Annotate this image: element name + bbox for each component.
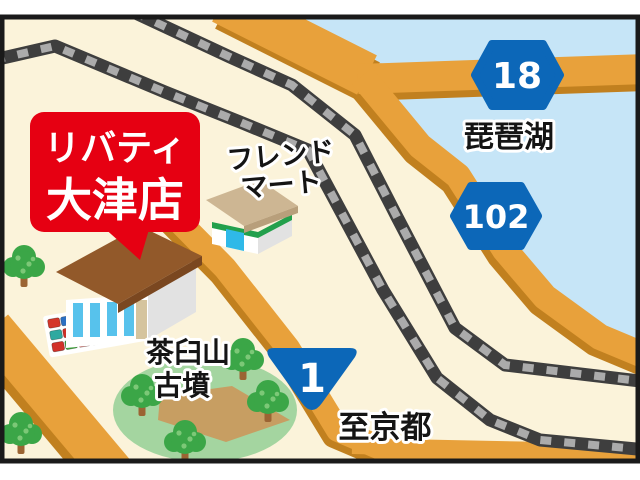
map-canvas: 18 102 1 リバティ 大津店 フレンド マート 琵琶湖 茶臼山 古墳 至京… bbox=[0, 0, 640, 480]
route-shield-102: 102 bbox=[454, 186, 538, 246]
to-kyoto-label: 至京都 bbox=[339, 410, 432, 446]
lake-biwa-label: 琵琶湖 bbox=[464, 120, 554, 155]
svg-text:茶臼山: 茶臼山 bbox=[146, 336, 230, 369]
shield-18-number: 18 bbox=[492, 56, 542, 97]
parked-car bbox=[47, 317, 60, 328]
parked-car bbox=[52, 341, 65, 352]
svg-text:古墳: 古墳 bbox=[154, 369, 210, 402]
store-callout-line1: リバティ bbox=[44, 128, 186, 169]
store-access-map: 18 102 1 リバティ 大津店 フレンド マート 琵琶湖 茶臼山 古墳 至京… bbox=[0, 0, 640, 480]
parked-car bbox=[49, 329, 62, 340]
store-callout-line2: 大津店 bbox=[46, 173, 184, 227]
shield-1-number: 1 bbox=[298, 356, 326, 402]
route-shield-18: 18 bbox=[475, 44, 560, 106]
shield-102-number: 102 bbox=[463, 198, 530, 236]
